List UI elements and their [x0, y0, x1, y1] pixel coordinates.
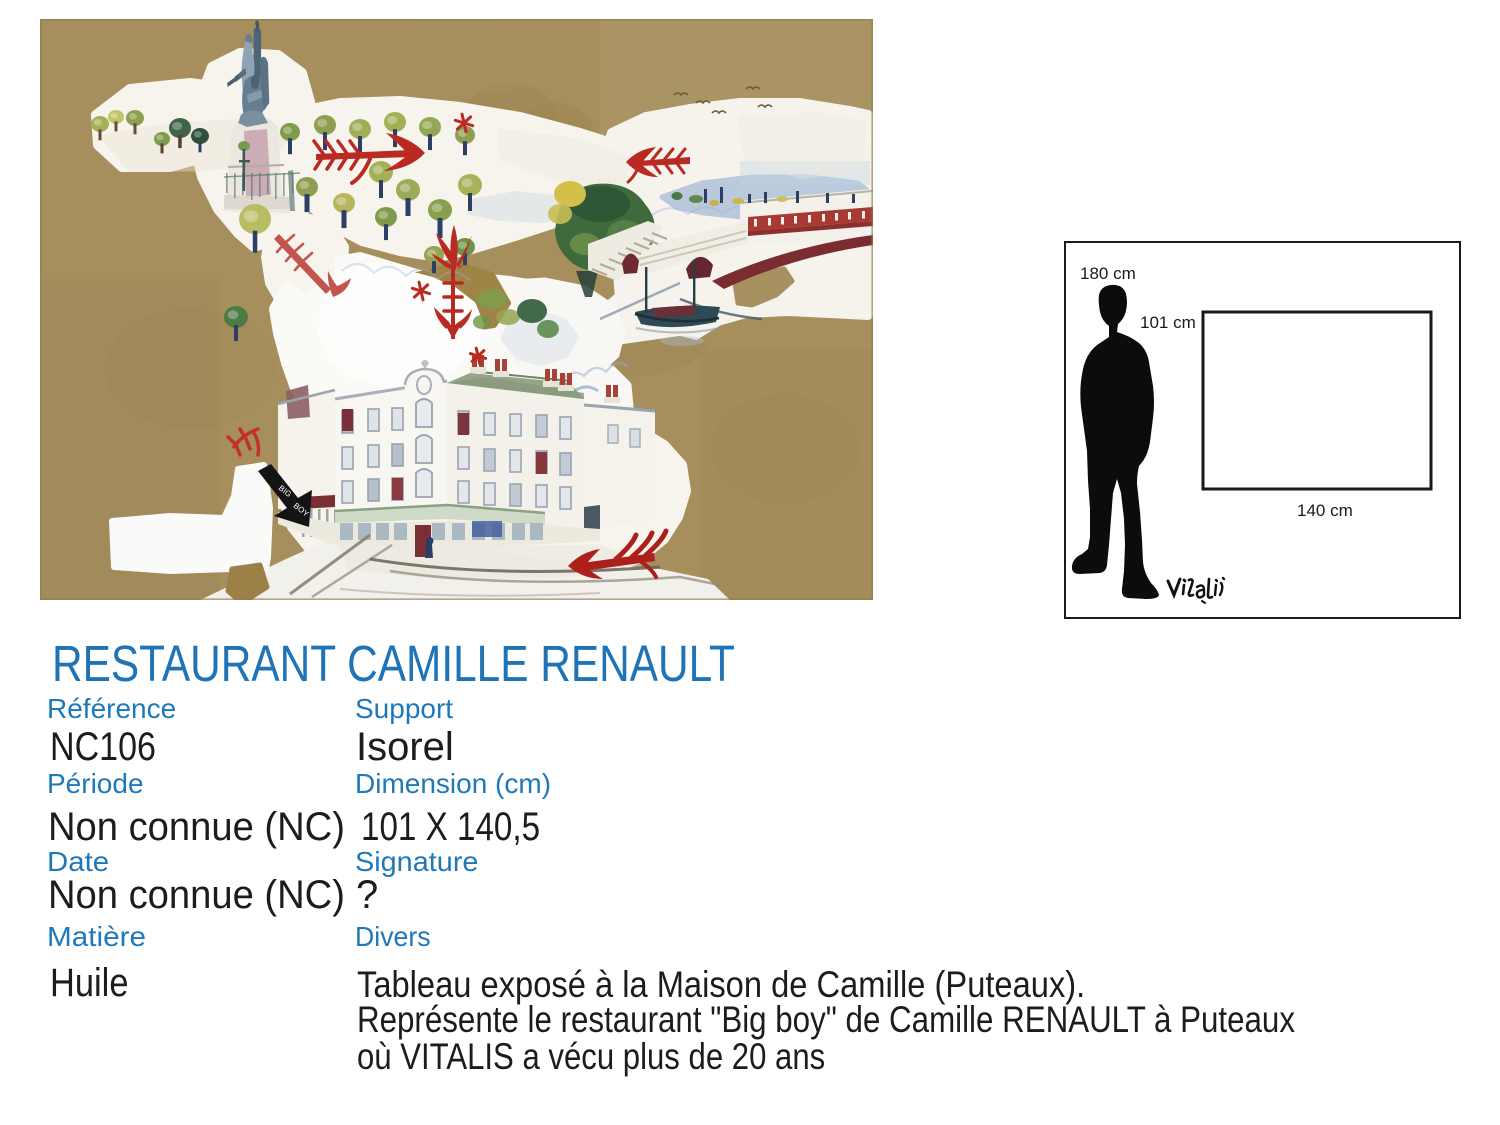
- svg-text:140 cm: 140 cm: [1297, 501, 1353, 520]
- svg-text:101 cm: 101 cm: [1140, 313, 1196, 332]
- svg-text:180 cm: 180 cm: [1080, 264, 1136, 283]
